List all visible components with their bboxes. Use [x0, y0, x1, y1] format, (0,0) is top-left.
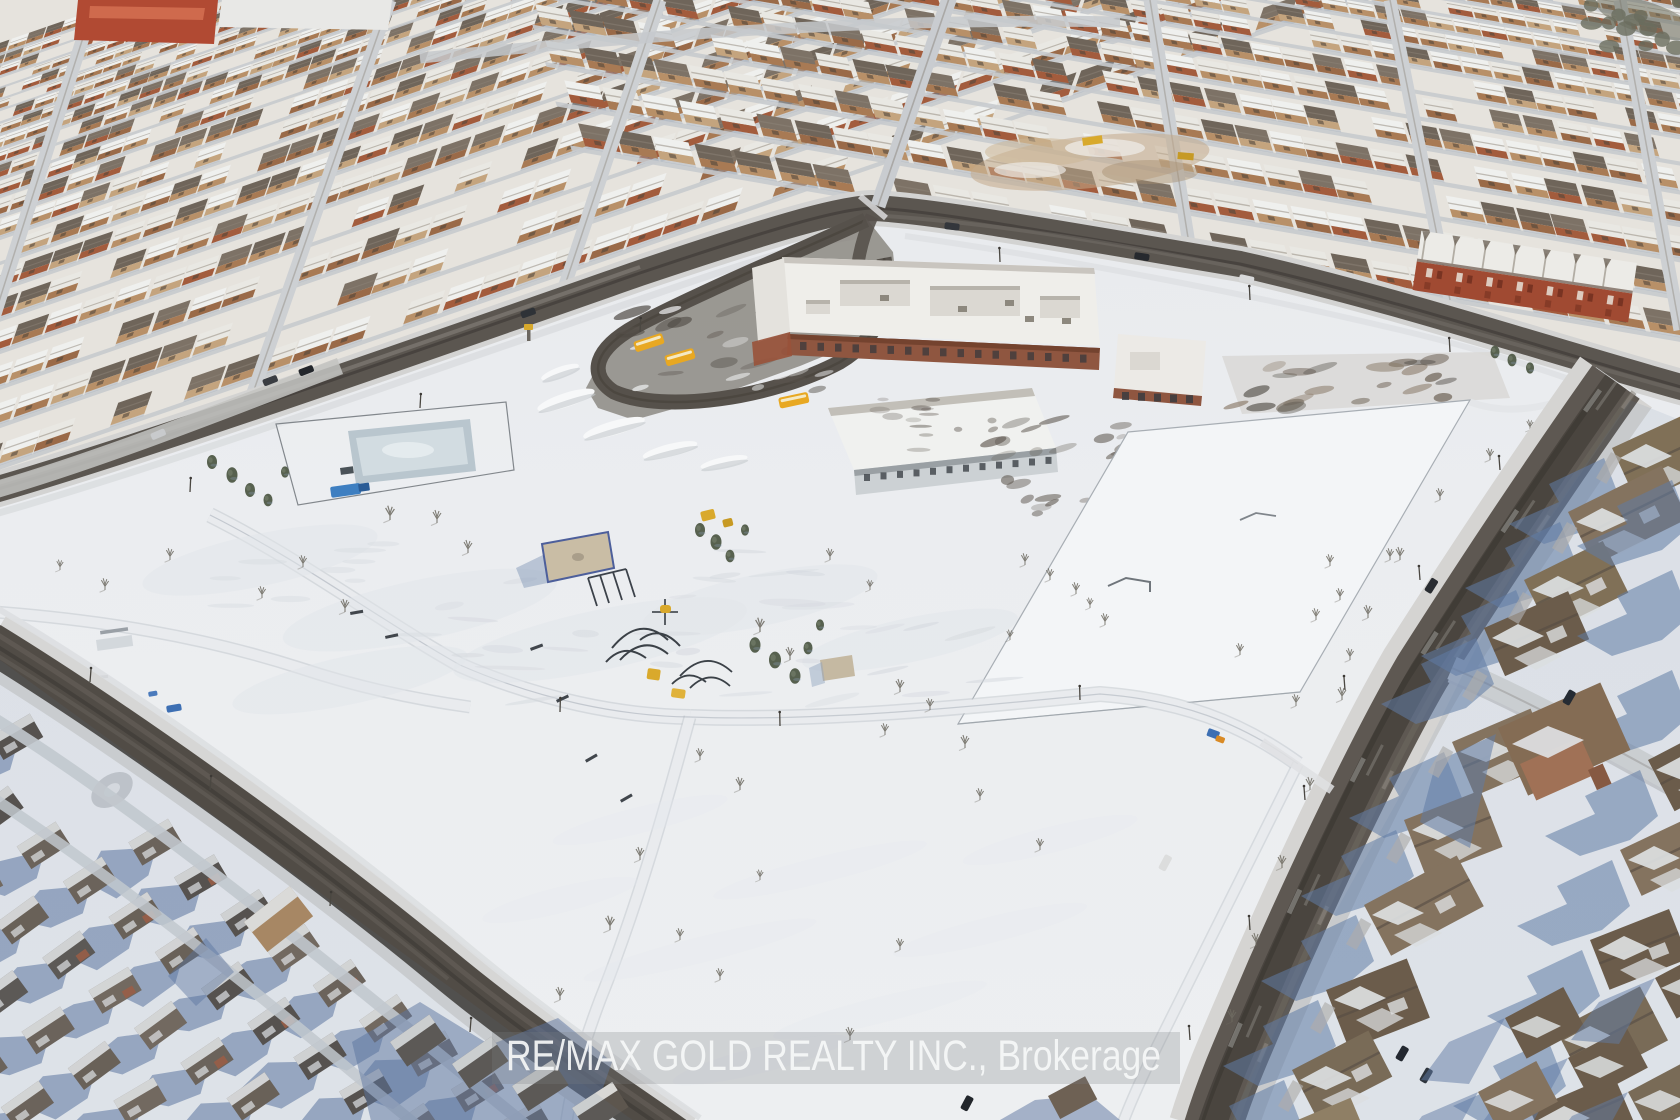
svg-text:RE/MAX GOLD REALTY INC., Broke: RE/MAX GOLD REALTY INC., Brokerage: [506, 1032, 1161, 1080]
